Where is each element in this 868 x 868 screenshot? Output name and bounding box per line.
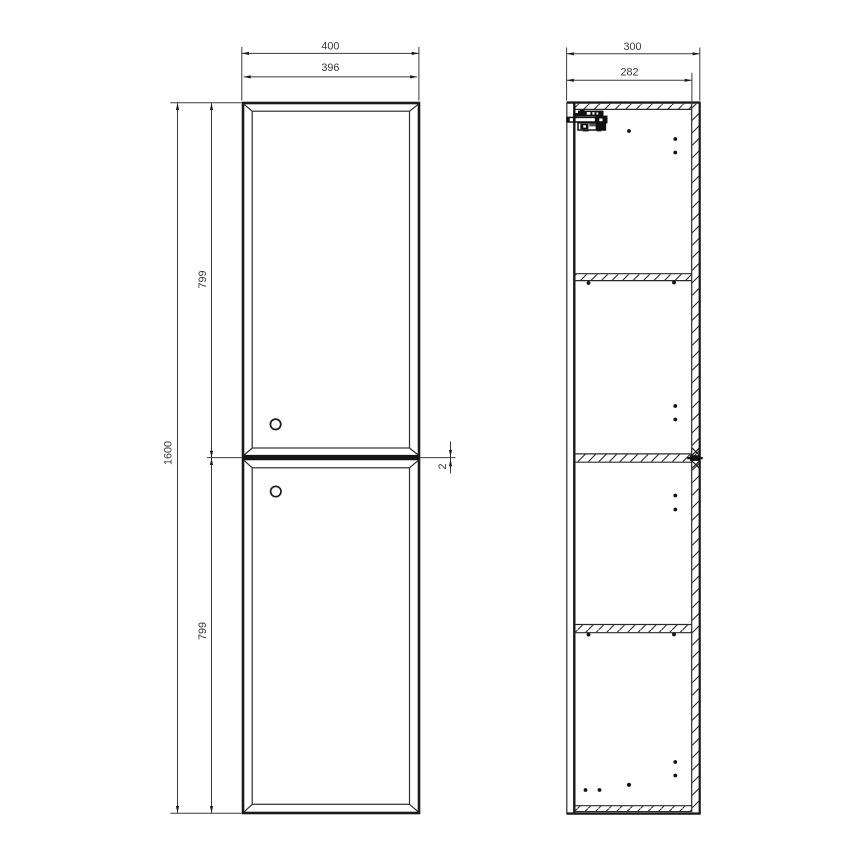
svg-text:2: 2 [437, 463, 449, 469]
svg-text:1600: 1600 [163, 441, 175, 465]
svg-text:799: 799 [197, 270, 209, 288]
svg-text:300: 300 [623, 41, 641, 53]
svg-text:396: 396 [321, 62, 339, 74]
svg-text:400: 400 [321, 40, 339, 52]
svg-text:799: 799 [197, 622, 209, 640]
svg-text:282: 282 [620, 67, 638, 79]
